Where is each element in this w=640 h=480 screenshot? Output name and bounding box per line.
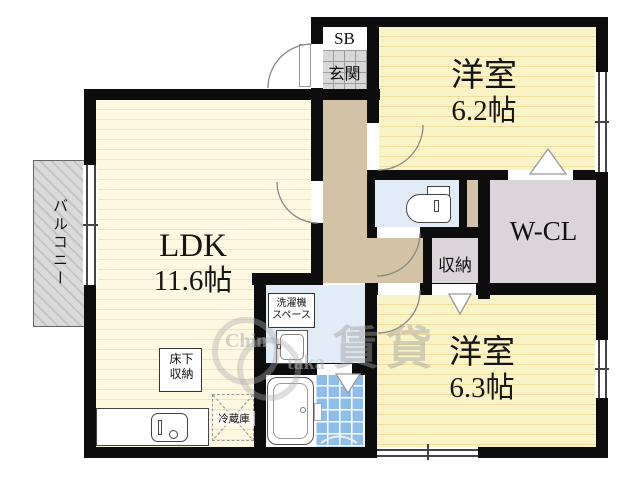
window-room63 [595,340,609,398]
pipe-space [467,180,478,227]
toilet-handle-icon [434,200,439,212]
fridge-label: 冷蔵庫 [213,411,255,426]
bathtub-drain [300,407,306,413]
shower-tile [315,373,363,447]
kitchen-faucet-icon [158,420,162,435]
room63-label: 洋室 6.3帖 [382,335,582,404]
balcony-label: バルコニー [49,168,70,318]
room62-label: 洋室 6.2帖 [384,58,584,127]
washer-label-1: 洗濯機 [269,298,314,310]
entrance-label: 玄関 [322,60,367,84]
toilet-bowl-icon [406,194,451,223]
ldk-label: LDK 11.6帖 [108,228,278,297]
wcl-door-opening [508,170,573,180]
underfloor-storage: 床下 収納 [159,348,202,392]
underfloor-storage-label-2: 収納 [160,367,203,382]
bath-door-opening [317,364,352,375]
room63-door-opening [378,283,420,295]
wall [478,170,490,299]
wall [367,17,379,123]
entrance-door-leaf [299,44,311,87]
vanity-faucet [277,344,281,349]
kitchen-drain-icon [169,430,178,439]
wall [84,89,380,100]
closet-label: 収納 [430,251,480,276]
ldk-door-opening [311,181,323,223]
wall [311,100,323,181]
window-tick [427,444,429,460]
wall [84,447,608,458]
wcl-label: W-CL [490,216,597,247]
shoebox-label: SB [322,29,367,49]
wall [367,170,375,238]
floorplan: 床下 収納 冷蔵庫 洗濯機 スペース Chin taka 賃貸 LDK 11.6… [0,0,640,480]
underfloor-storage-label-1: 床下 [160,352,203,367]
vanity-basin [280,334,304,360]
fridge-space: 冷蔵庫 [212,394,254,441]
shower-door-handle [314,403,322,421]
closet-door-opening [432,284,476,295]
balcony-window [83,165,98,285]
wall [459,178,467,238]
wall [311,17,608,27]
corridor-stub [322,238,423,283]
washer-label-2: スペース [269,310,314,322]
wall [311,86,323,100]
window-room62 [595,72,609,172]
toilet-door-opening [377,227,420,238]
washer-space: 洗濯機 スペース [268,293,315,328]
room62-door-opening [367,123,379,170]
